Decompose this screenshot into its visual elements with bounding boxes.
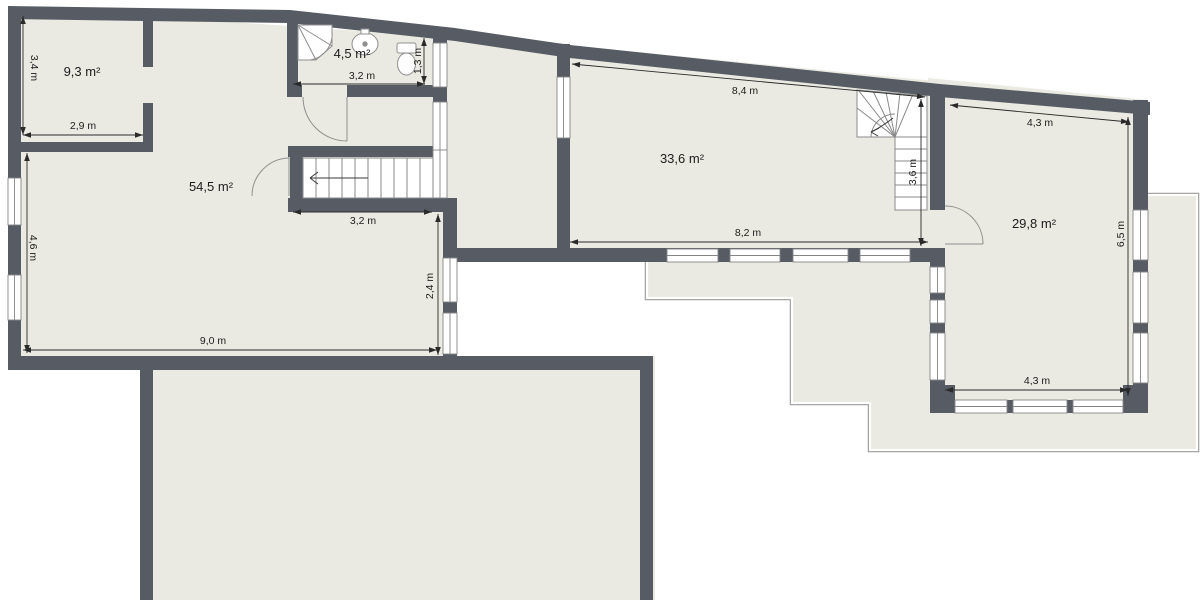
dim-label-1-3: 1,3 m [412, 48, 424, 75]
dim-label-4-3-top: 4,3 m [1027, 117, 1054, 129]
dim-label-8-2: 8,2 m [735, 227, 762, 239]
room-area-bathroom: 4,5 m² [334, 46, 372, 61]
lower-level-area [140, 356, 655, 600]
window-icon [930, 333, 945, 380]
room-area-top-left: 9,3 m² [64, 64, 102, 79]
dim-label-3-2-stairs: 3,2 m [350, 215, 377, 227]
dim-label-4-3-bottom: 4,3 m [1024, 375, 1051, 387]
window-icon [793, 249, 848, 262]
divider-wall [930, 96, 945, 210]
window-icon [930, 267, 945, 293]
window-icon [1013, 400, 1067, 413]
floor-plan-drawing: 9,3 m² 4,5 m² 54,5 m² 33,6 m² 29,8 m² 3,… [0, 0, 1200, 600]
dim-label-3-2-bath: 3,2 m [349, 70, 376, 82]
floor-plan-page: 9,3 m² 4,5 m² 54,5 m² 33,6 m² 29,8 m² 3,… [0, 0, 1200, 600]
dim-label-3-4: 3,4 m [28, 55, 40, 82]
window-icon [433, 102, 447, 198]
dim-label-4-6: 4,6 m [27, 235, 39, 262]
window-icon [730, 249, 780, 262]
window-icon [443, 313, 457, 354]
window-icon [860, 249, 910, 262]
window-icon [1133, 333, 1148, 383]
window-icon [8, 275, 21, 320]
window-icon [955, 400, 1007, 413]
dim-label-2-9: 2,9 m [70, 120, 97, 132]
window-icon [443, 258, 457, 302]
dim-label-9-0: 9,0 m [200, 335, 227, 347]
straight-stairs-icon [303, 158, 433, 198]
window-icon [8, 178, 21, 225]
room-area-living: 54,5 m² [189, 179, 234, 194]
dim-label-6-5: 6,5 m [1115, 221, 1127, 248]
window-icon [433, 43, 447, 87]
window-icon [667, 249, 718, 262]
dim-label-8-4: 8,4 m [732, 85, 759, 97]
dim-label-3-6: 3,6 m [907, 159, 919, 186]
window-icon [1133, 210, 1148, 260]
window-icon [1073, 400, 1123, 413]
window-icon [1133, 272, 1148, 323]
window-icon [557, 77, 570, 138]
window-icon [930, 300, 945, 323]
dim-label-2-4: 2,4 m [424, 273, 436, 300]
bottom-wall-living [8, 356, 653, 370]
room-area-right: 29,8 m² [1012, 216, 1057, 231]
room-area-middle: 33,6 m² [660, 151, 705, 166]
